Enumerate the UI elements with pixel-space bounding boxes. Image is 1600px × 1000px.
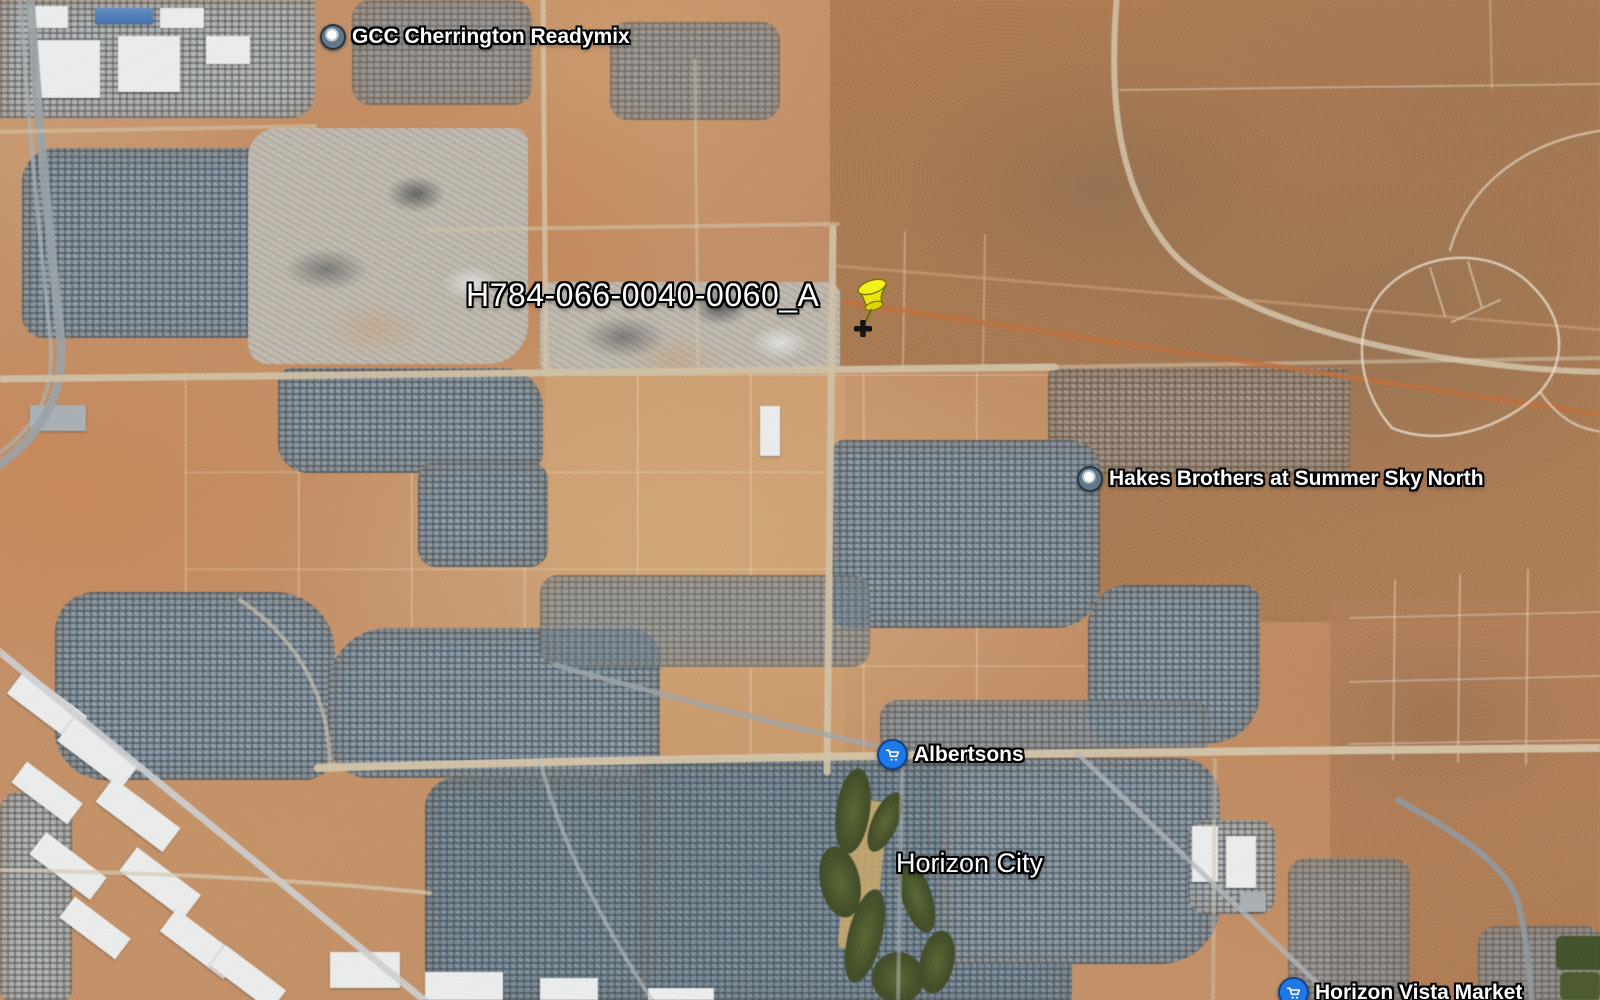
poi-label: Albertsons [914, 743, 1024, 767]
crop-field [1556, 936, 1600, 970]
building [1192, 826, 1218, 882]
terrain-layers [0, 0, 1600, 1000]
building [95, 8, 153, 24]
building [1240, 892, 1266, 912]
building [1226, 836, 1256, 888]
yellow-pushpin-icon[interactable] [846, 276, 898, 338]
urban-area [352, 0, 532, 105]
quarry-industrial-area [248, 128, 528, 364]
crop-field [1560, 972, 1600, 1000]
building [760, 406, 780, 456]
shopping-cart-marker-icon[interactable] [1278, 977, 1309, 1000]
warehouse [648, 988, 714, 1000]
building [160, 8, 204, 28]
building [206, 36, 250, 64]
warehouse [540, 978, 598, 1000]
building [28, 6, 68, 28]
urban-area [418, 462, 548, 567]
poi-readymix[interactable]: GCC Cherrington Readymix [320, 24, 630, 50]
parcel-pin-label: H784-066-0040-0060_A [466, 277, 819, 314]
building [30, 405, 86, 431]
industrial-area [0, 792, 72, 1000]
warehouse [425, 972, 503, 1000]
poi-label: Horizon Vista Market [1315, 981, 1522, 1000]
urban-area [610, 22, 780, 120]
building [36, 40, 100, 98]
poi-hakes-brothers[interactable]: Hakes Brothers at Summer Sky North [1077, 466, 1484, 492]
poi-label: Hakes Brothers at Summer Sky North [1109, 467, 1484, 491]
building [118, 36, 180, 92]
warehouse [330, 952, 400, 988]
urban-area [540, 575, 870, 667]
poi-ring-icon[interactable] [1077, 466, 1103, 492]
urban-area [832, 440, 1100, 628]
urban-area [278, 368, 543, 473]
satellite-map-canvas[interactable]: GCC Cherrington Readymix H784-066-0040-0… [0, 0, 1600, 1000]
shopping-cart-marker-icon[interactable] [877, 739, 908, 770]
place-label-horizon-city: Horizon City [896, 848, 1043, 879]
poi-albertsons[interactable]: Albertsons [877, 739, 1024, 770]
poi-label: GCC Cherrington Readymix [352, 25, 630, 49]
poi-ring-icon[interactable] [320, 24, 346, 50]
golf-course-patch [872, 952, 924, 1000]
poi-horizon-vista-market[interactable]: Horizon Vista Market [1278, 977, 1522, 1000]
